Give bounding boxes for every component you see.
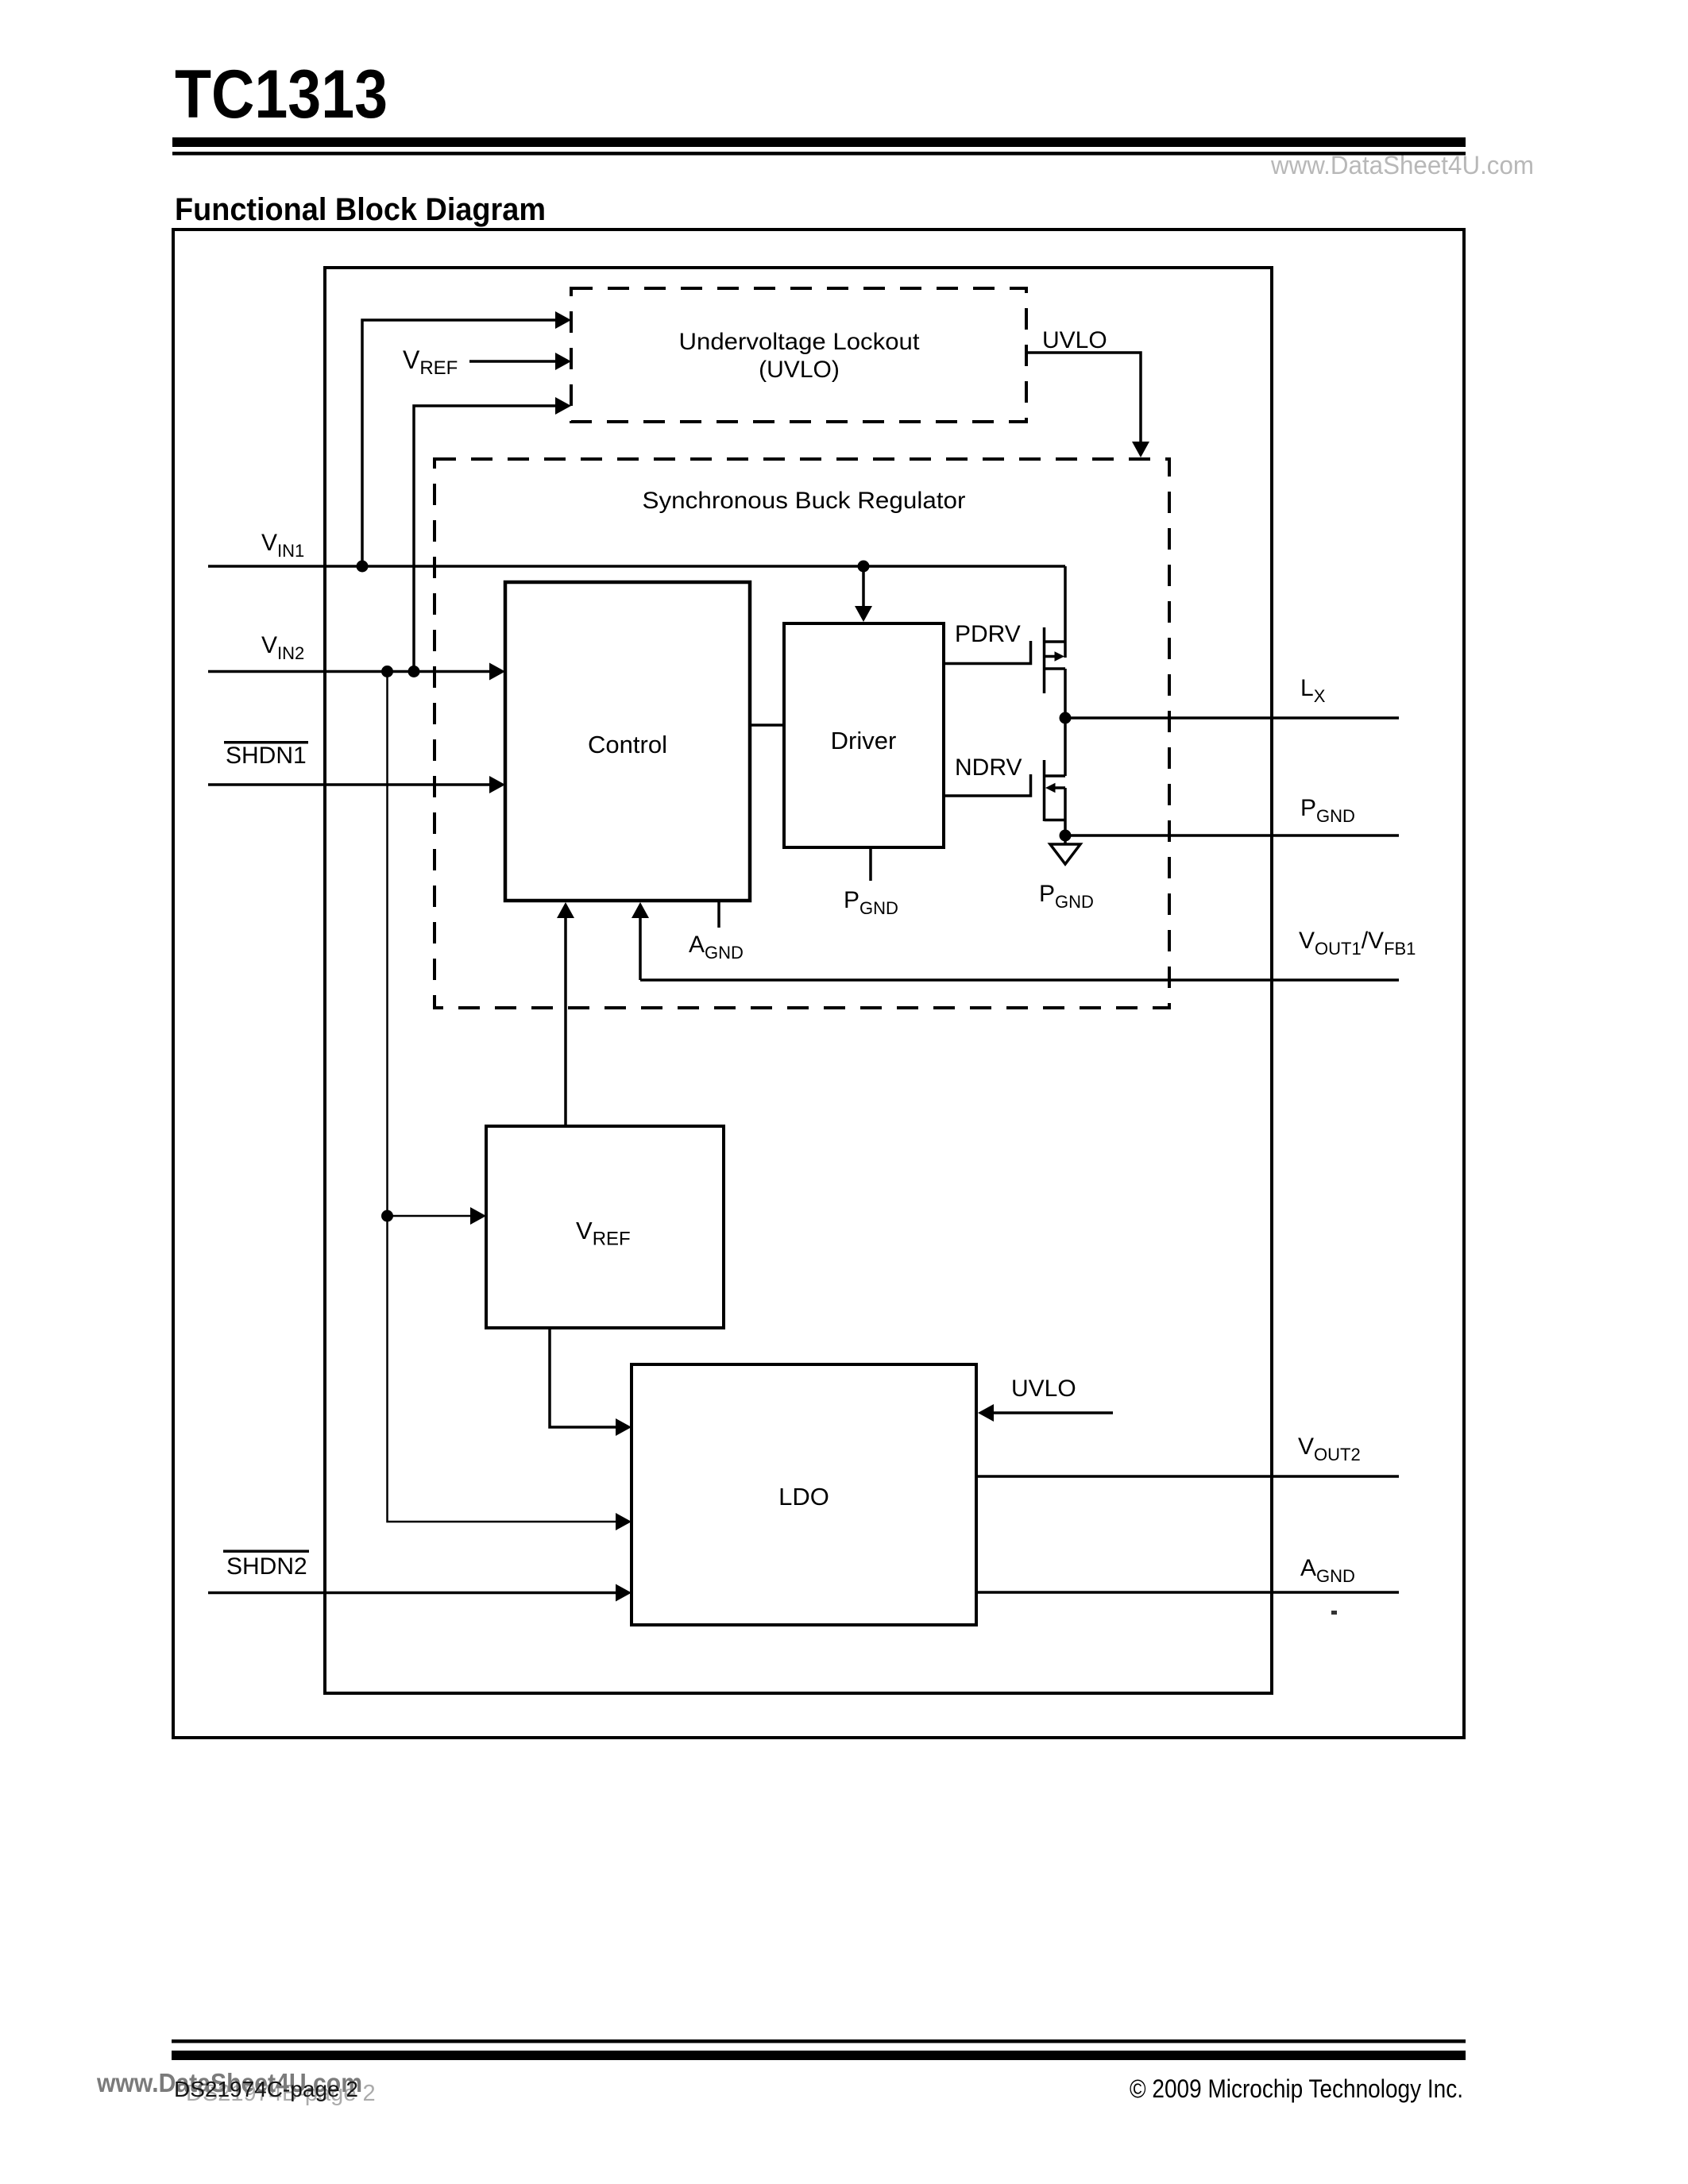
svg-text:Driver: Driver — [831, 727, 897, 754]
svg-text:UVLO: UVLO — [1011, 1376, 1076, 1402]
svg-text:Synchronous Buck Regulator: Synchronous Buck Regulator — [643, 488, 966, 514]
svg-text:LDO: LDO — [778, 1483, 829, 1511]
svg-text:Undervoltage Lockout: Undervoltage Lockout — [679, 329, 921, 355]
svg-text:© 2009 Microchip Technology In: © 2009 Microchip Technology Inc. — [1130, 2074, 1463, 2103]
svg-text:DS21974C-page 2: DS21974C-page 2 — [174, 2077, 358, 2101]
svg-text:Control: Control — [588, 731, 667, 758]
svg-text:www.DataSheet4U.com: www.DataSheet4U.com — [1270, 151, 1534, 179]
svg-text:TC1313: TC1313 — [175, 56, 388, 133]
svg-text:(UVLO): (UVLO) — [759, 357, 840, 383]
svg-text:UVLO: UVLO — [1042, 327, 1107, 353]
svg-text:NDRV: NDRV — [955, 754, 1022, 781]
svg-text:SHDN1: SHDN1 — [226, 743, 307, 769]
svg-text:PDRV: PDRV — [955, 621, 1021, 647]
svg-text:Functional Block Diagram: Functional Block Diagram — [175, 192, 546, 227]
svg-text:SHDN2: SHDN2 — [226, 1553, 307, 1580]
